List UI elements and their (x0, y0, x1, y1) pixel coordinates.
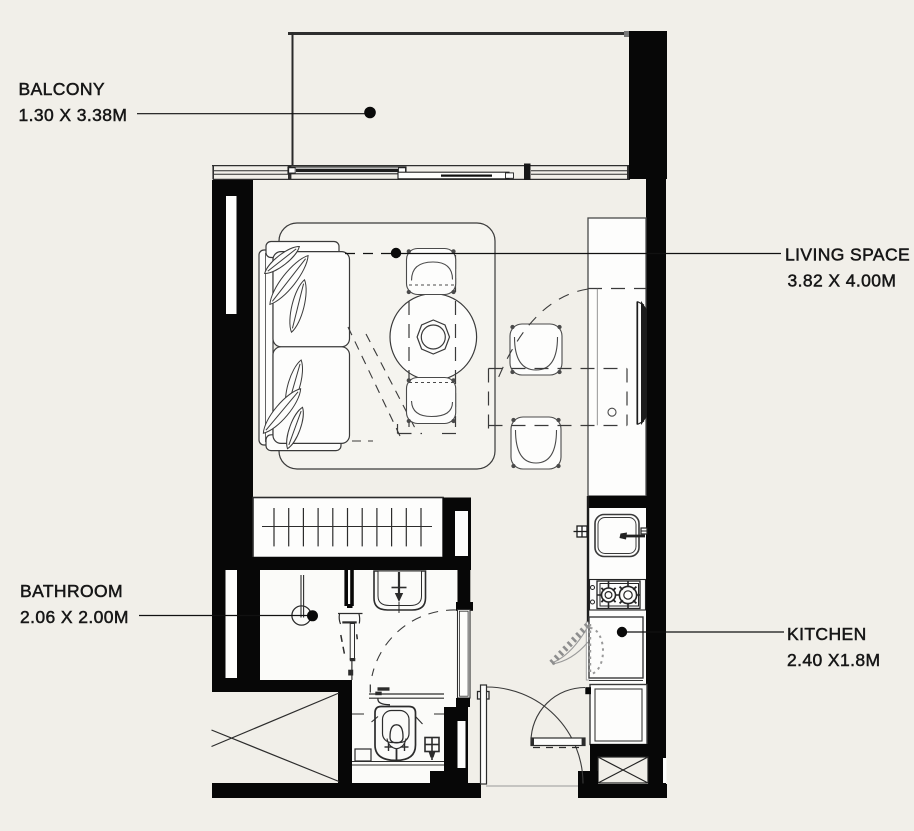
svg-text:2.40 X1.8M: 2.40 X1.8M (787, 650, 881, 670)
svg-text:KITCHEN: KITCHEN (787, 624, 867, 644)
svg-text:BALCONY: BALCONY (19, 79, 105, 99)
svg-text:BATHROOM: BATHROOM (20, 581, 123, 601)
svg-text:2.06 X 2.00M: 2.06 X 2.00M (20, 607, 129, 627)
svg-text:3.82 X 4.00M: 3.82 X 4.00M (788, 271, 897, 291)
svg-text:LIVING SPACE: LIVING SPACE (785, 245, 910, 265)
svg-text:1.30 X 3.38M: 1.30 X 3.38M (19, 105, 128, 125)
